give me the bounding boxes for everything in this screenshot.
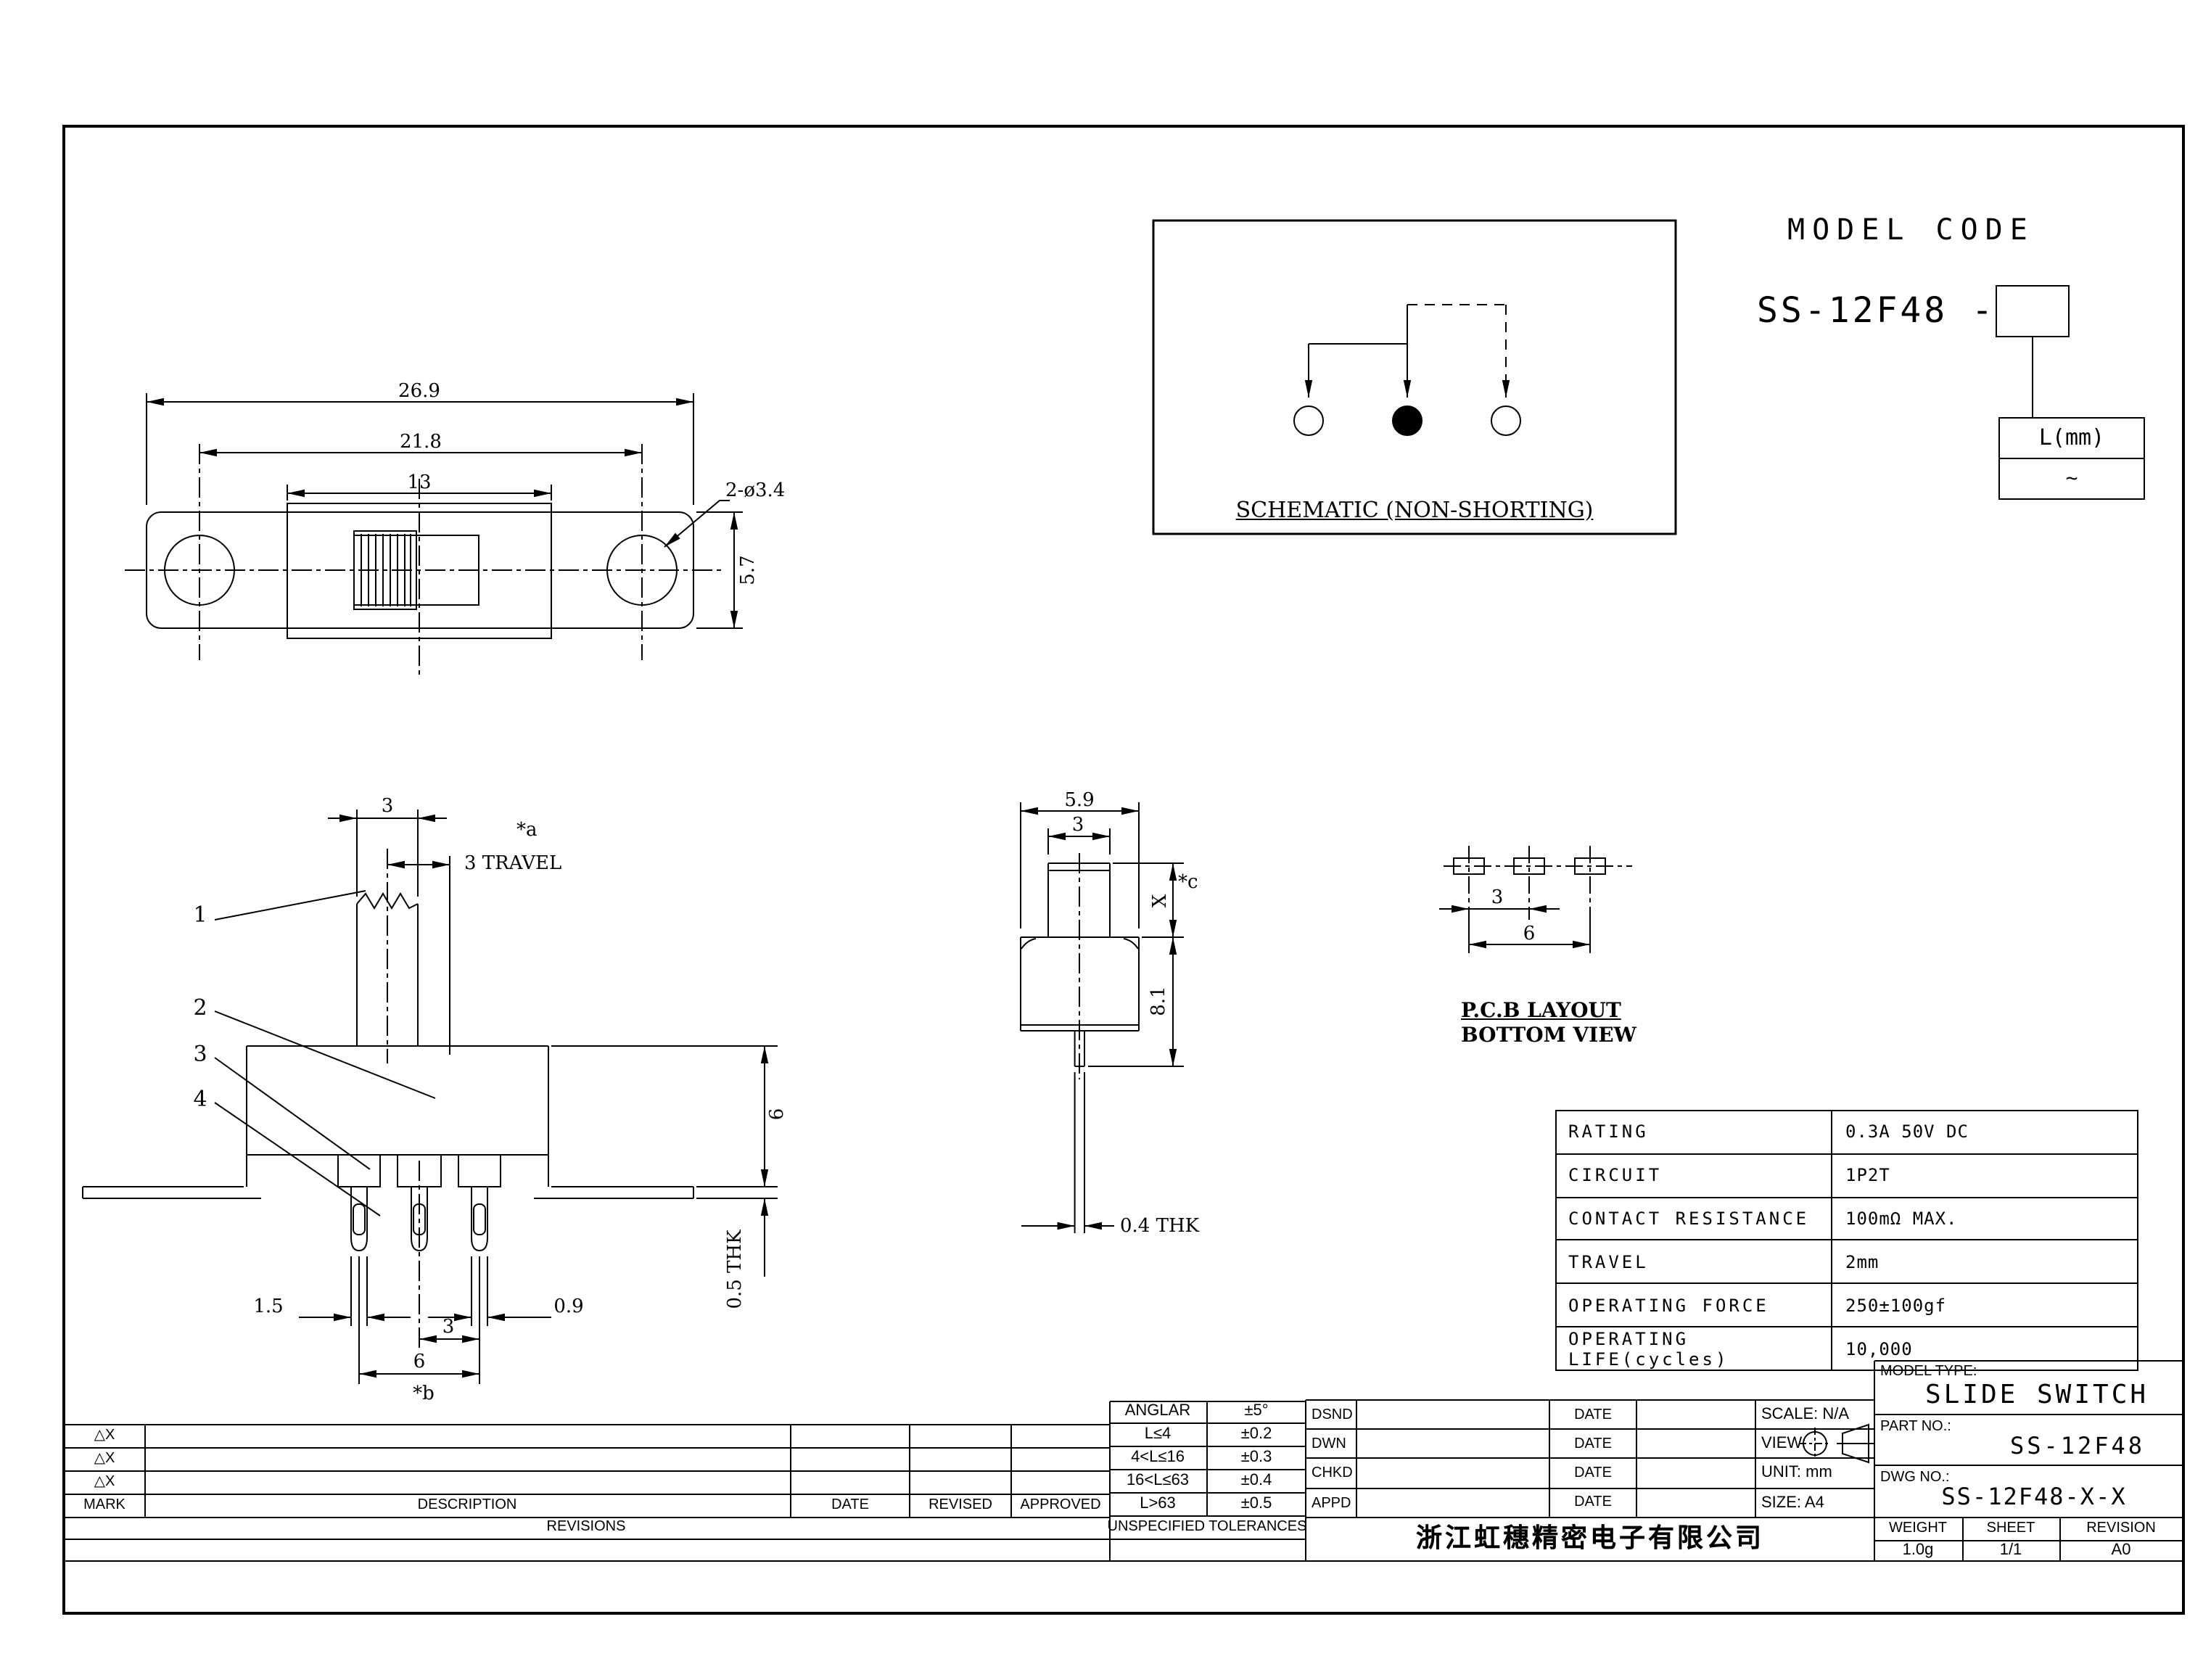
dim-pin-left: 1.5 xyxy=(253,1298,283,1317)
drawing-sheet: MODEL CODE SS-12F48 - L(mm) ~ SCHEMATIC … xyxy=(0,0,2211,1680)
dim-travel: 3 TRAVEL xyxy=(464,855,561,873)
weight-value: 1.0g xyxy=(1903,1543,1934,1559)
spec-value: 2mm xyxy=(1832,1241,2137,1283)
leader-3: 3 xyxy=(193,1044,207,1066)
titleblock-role-dsnd: DSND xyxy=(1312,1409,1353,1423)
dim-knob-height: X xyxy=(1151,894,1170,908)
pcb-dim-pitch: 3 xyxy=(1491,889,1504,907)
tolerance-value: ±0.4 xyxy=(1241,1473,1272,1489)
tolerance-range: L≤4 xyxy=(1145,1427,1172,1443)
note-b: *b xyxy=(413,1385,435,1404)
tolerance-range: L>63 xyxy=(1140,1496,1176,1512)
titleblock-size: SIZE: A4 xyxy=(1761,1496,1824,1512)
model-type-value: SLIDE SWITCH xyxy=(1925,1383,2149,1409)
revisions-header-approved: APPROVED xyxy=(1020,1499,1100,1513)
spec-row-contact-resistance: CONTACT RESISTANCE 100mΩ MAX. xyxy=(1557,1196,2137,1240)
tolerance-range: 16<L≤63 xyxy=(1127,1473,1189,1489)
titleblock-role-dwn: DWN xyxy=(1312,1438,1346,1452)
leader-2: 2 xyxy=(193,997,207,1019)
spec-row-circuit: CIRCUIT 1P2T xyxy=(1557,1153,2137,1197)
dim-pin-width: 0.9 xyxy=(553,1298,583,1317)
revision-mark: △X xyxy=(94,1452,115,1467)
spec-row-travel: TRAVEL 2mm xyxy=(1557,1240,2137,1283)
tolerance-range: 4<L≤16 xyxy=(1131,1450,1185,1466)
spec-value: 10,000 xyxy=(1832,1327,2137,1370)
sheet-value: 1/1 xyxy=(2000,1543,2022,1559)
titleblock-date-label: DATE xyxy=(1574,1438,1612,1452)
note-c: *c xyxy=(1178,873,1198,892)
model-code-prefix: SS-12F48 - xyxy=(1757,293,1996,328)
part-no-label: PART NO.: xyxy=(1880,1420,1951,1435)
dim-mounting-holes: 2-ø3.4 xyxy=(725,482,785,501)
revisions-header-date: DATE xyxy=(831,1499,869,1513)
dim-knob-width: 3 xyxy=(382,797,394,816)
spec-value: 250±100gf xyxy=(1832,1285,2137,1327)
revisions-footer: REVISIONS xyxy=(547,1520,626,1535)
schematic-caption: SCHEMATIC (NON-SHORTING) xyxy=(1236,500,1594,522)
dim-bracket-thickness: 0.5 THK xyxy=(726,1230,745,1309)
spec-value: 100mΩ MAX. xyxy=(1832,1198,2137,1240)
revisions-header-description: DESCRIPTION xyxy=(418,1499,517,1513)
dwg-no-value: SS-12F48-X-X xyxy=(1941,1486,2126,1509)
spec-row-rating: RATING 0.3A 50V DC xyxy=(1557,1111,2137,1153)
spec-label: CIRCUIT xyxy=(1557,1155,1832,1197)
tolerance-range: ANGLAR xyxy=(1125,1404,1191,1420)
titleblock-scale: SCALE: N/A xyxy=(1761,1407,1849,1423)
dim-body-height: 6 xyxy=(768,1108,787,1121)
tolerance-value: ±0.5 xyxy=(1241,1496,1272,1512)
pcb-layout-subtitle: BOTTOM VIEW xyxy=(1461,1026,1636,1046)
revisions-header-mark: MARK xyxy=(83,1499,125,1513)
titleblock-date-label: DATE xyxy=(1574,1496,1612,1510)
titleblock-unit: UNIT: mm xyxy=(1761,1465,1832,1481)
leader-4: 4 xyxy=(193,1089,207,1111)
titleblock-date-label: DATE xyxy=(1574,1409,1612,1423)
titleblock-view: VIEW: xyxy=(1761,1436,1806,1452)
pcb-dim-span: 6 xyxy=(1523,925,1536,944)
third-angle-view-icon xyxy=(1799,1425,1874,1462)
dim-frame-width: 13 xyxy=(407,474,431,493)
pcb-layout-title: P.C.B LAYOUT xyxy=(1461,1001,1621,1021)
model-type-label: MODEL TYPE: xyxy=(1880,1365,1977,1380)
spec-row-operating-life: OPERATING LIFE(cycles) 10,000 xyxy=(1557,1326,2137,1370)
dim-side-knob: 3 xyxy=(1072,816,1084,835)
dim-pin-pitch: 3 xyxy=(442,1318,455,1337)
dim-overall-length: 26.9 xyxy=(398,382,440,401)
spec-label: TRAVEL xyxy=(1557,1241,1832,1283)
revision-mark: △X xyxy=(94,1429,115,1444)
revision-value: A0 xyxy=(2112,1543,2131,1559)
titleblock-role-chkd: CHKD xyxy=(1312,1467,1353,1481)
spec-value: 1P2T xyxy=(1832,1155,2137,1197)
drawing-linework xyxy=(0,0,2211,1680)
part-no-value: SS-12F48 xyxy=(2010,1435,2145,1458)
dim-side-body: 8.1 xyxy=(1150,986,1169,1016)
dim-body-width: 5.7 xyxy=(739,555,758,585)
tolerance-value: ±0.3 xyxy=(1241,1450,1272,1466)
note-a: *a xyxy=(516,821,538,840)
dim-side-width: 5.9 xyxy=(1064,791,1094,810)
spec-row-operating-force: OPERATING FORCE 250±100gf xyxy=(1557,1283,2137,1327)
dim-hole-span: 21.8 xyxy=(400,433,442,452)
leader-1: 1 xyxy=(193,905,207,926)
model-code-title: MODEL CODE xyxy=(1787,215,2035,244)
spec-label: OPERATING FORCE xyxy=(1557,1285,1832,1327)
model-code-suffix-header: L(mm) xyxy=(2039,427,2104,449)
tolerance-value: ±5° xyxy=(1244,1404,1268,1420)
tolerance-value: ±0.2 xyxy=(1241,1427,1272,1443)
dwg-no-label: DWG NO.: xyxy=(1880,1471,1950,1486)
dim-pin-thickness: 0.4 THK xyxy=(1120,1217,1199,1236)
spec-value: 0.3A 50V DC xyxy=(1832,1111,2137,1153)
revision-mark: △X xyxy=(94,1475,115,1490)
spec-table: RATING 0.3A 50V DC CIRCUIT 1P2T CONTACT … xyxy=(1555,1110,2138,1371)
spec-label: OPERATING LIFE(cycles) xyxy=(1557,1327,1832,1370)
tolerance-footer: UNSPECIFIED TOLERANCES xyxy=(1108,1520,1307,1535)
spec-label: CONTACT RESISTANCE xyxy=(1557,1198,1832,1240)
model-code-suffix-value: ~ xyxy=(2066,469,2078,489)
titleblock-date-label: DATE xyxy=(1574,1467,1612,1481)
weight-label: WEIGHT xyxy=(1889,1522,1947,1536)
revision-label: REVISION xyxy=(2086,1522,2156,1536)
dim-pin-span: 6 xyxy=(413,1353,426,1372)
spec-label: RATING xyxy=(1557,1111,1832,1153)
company-name: 浙江虹穗精密电子有限公司 xyxy=(1416,1526,1764,1552)
titleblock-role-appd: APPD xyxy=(1312,1497,1351,1512)
revisions-header-revised: REVISED xyxy=(929,1499,992,1513)
sheet-label: SHEET xyxy=(1987,1522,2035,1536)
